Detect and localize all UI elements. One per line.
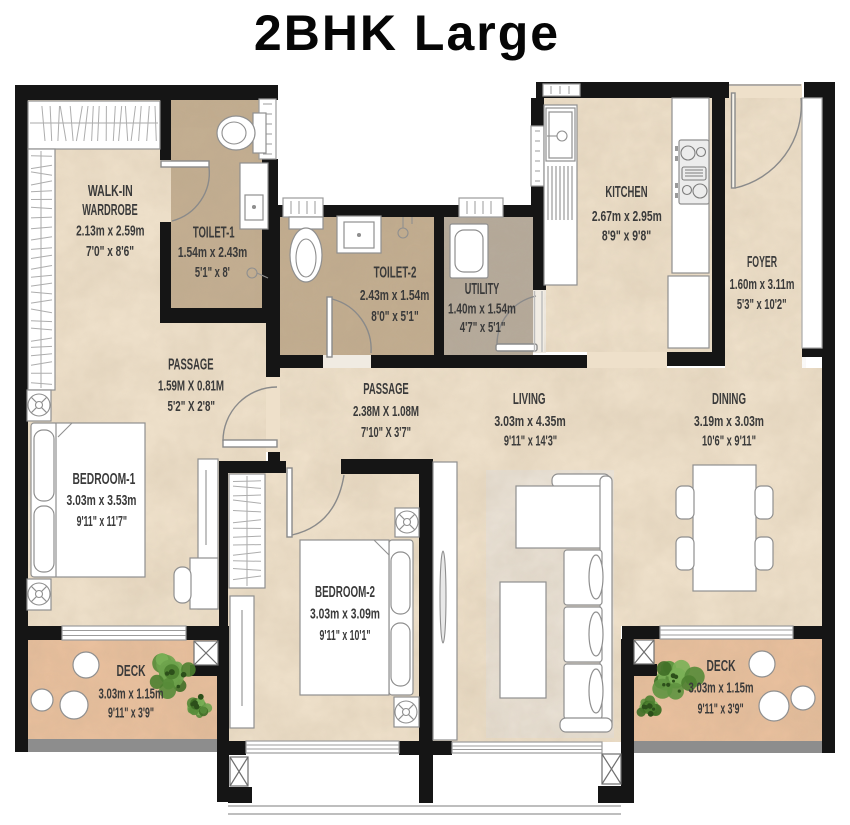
svg-text:DECK: DECK <box>707 657 736 675</box>
svg-text:PASSAGE: PASSAGE <box>363 380 409 398</box>
svg-text:PASSAGE: PASSAGE <box>168 355 214 373</box>
svg-text:TOILET-2: TOILET-2 <box>374 263 417 281</box>
svg-text:9'11" x 14'3": 9'11" x 14'3" <box>504 432 557 449</box>
svg-text:2.67m x 2.95m: 2.67m x 2.95m <box>592 207 662 224</box>
svg-text:2.13m x 2.59m: 2.13m x 2.59m <box>76 223 144 239</box>
svg-text:1.54m x 2.43m: 1.54m x 2.43m <box>178 243 247 260</box>
svg-text:FOYER: FOYER <box>747 253 777 270</box>
svg-text:WALK-IN: WALK-IN <box>88 182 133 200</box>
svg-text:TOILET-1: TOILET-1 <box>193 223 235 241</box>
svg-text:4'7" x 5'1": 4'7" x 5'1" <box>460 319 506 336</box>
svg-text:1.40m x 1.54m: 1.40m x 1.54m <box>448 301 516 317</box>
svg-text:2.38M X 1.08M: 2.38M X 1.08M <box>353 403 419 420</box>
svg-text:7'10" X 3'7": 7'10" X 3'7" <box>361 424 411 441</box>
svg-text:WARDROBE: WARDROBE <box>82 200 137 218</box>
svg-text:3.19m x 3.03m: 3.19m x 3.03m <box>694 412 764 429</box>
svg-text:8'9" x 9'8": 8'9" x 9'8" <box>602 227 651 244</box>
svg-text:10'6" x 9'11": 10'6" x 9'11" <box>702 432 756 449</box>
svg-text:UTILITY: UTILITY <box>465 281 500 298</box>
svg-text:2.43m x 1.54m: 2.43m x 1.54m <box>360 286 430 303</box>
svg-text:1.59M X 0.81M: 1.59M X 0.81M <box>158 378 224 395</box>
svg-text:BEDROOM-1: BEDROOM-1 <box>73 470 136 488</box>
svg-text:9'11" x 3'9": 9'11" x 3'9" <box>108 704 154 721</box>
svg-text:BEDROOM-2: BEDROOM-2 <box>315 583 375 601</box>
svg-text:9'11" x 3'9": 9'11" x 3'9" <box>698 700 744 717</box>
svg-text:8'0" x 5'1": 8'0" x 5'1" <box>371 308 418 324</box>
svg-text:3.03m x 4.35m: 3.03m x 4.35m <box>494 412 565 429</box>
svg-text:DINING: DINING <box>712 389 746 407</box>
svg-text:LIVING: LIVING <box>513 389 546 407</box>
svg-text:1.60m x 3.11m: 1.60m x 3.11m <box>730 276 795 293</box>
svg-text:KITCHEN: KITCHEN <box>605 183 647 201</box>
svg-text:5'3" x 10'2": 5'3" x 10'2" <box>737 296 787 313</box>
svg-text:2BHK Large: 2BHK Large <box>254 5 560 61</box>
svg-text:3.03m x 3.53m: 3.03m x 3.53m <box>67 491 137 508</box>
svg-text:9'11" x 10'1": 9'11" x 10'1" <box>320 627 371 644</box>
svg-text:9'11" x 11'7": 9'11" x 11'7" <box>77 513 127 530</box>
svg-text:3.03m x 1.15m: 3.03m x 1.15m <box>688 680 753 697</box>
svg-text:7'0" x 8'6": 7'0" x 8'6" <box>86 243 134 259</box>
svg-text:3.03m x 1.15m: 3.03m x 1.15m <box>98 686 163 703</box>
svg-text:3.03m x 3.09m: 3.03m x 3.09m <box>310 605 380 622</box>
svg-text:DECK: DECK <box>117 662 146 680</box>
svg-text:5'1" x 8': 5'1" x 8' <box>195 264 230 281</box>
svg-text:5'2" X 2'8": 5'2" X 2'8" <box>168 398 216 415</box>
